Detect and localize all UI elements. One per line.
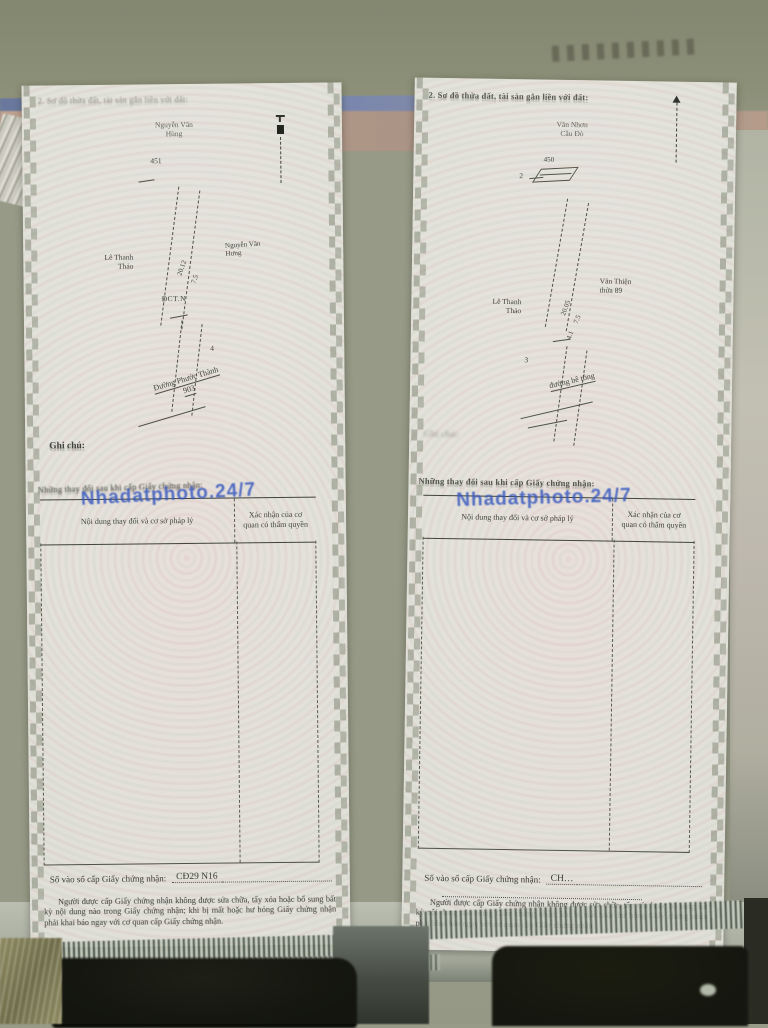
- land-certificate-left: 2. Sơ đồ thửa đất, tài sản gắn liền với …: [21, 82, 350, 947]
- border-pattern-right: [327, 82, 348, 944]
- bottom-left-texture: [0, 938, 62, 1024]
- dimension-label: 2: [519, 171, 523, 180]
- parcel-boundary-line: [160, 187, 179, 326]
- changes-table-body: [418, 537, 695, 853]
- note-label: Ghi chú:: [423, 430, 459, 441]
- light-spot: [700, 984, 716, 996]
- dimension-tick: [139, 179, 155, 182]
- dimension-tick: [170, 314, 188, 318]
- serial-value: CĐ29 N16: [172, 872, 222, 884]
- dimension-label: 3: [524, 355, 528, 364]
- measurement: 20.12: [175, 259, 188, 277]
- parcel-boundary-line: [566, 203, 589, 331]
- parcel-number: 450: [544, 156, 555, 164]
- dimension-label: 4: [210, 344, 214, 353]
- parcel-boundary-line: [573, 351, 587, 446]
- changes-table-col2: Xác nhận của cơ quan có thẩm quyền: [235, 498, 316, 543]
- parcel-top-shape: [532, 167, 579, 183]
- measurement: 7.5: [572, 314, 583, 325]
- serial-label: Số vào sổ cấp Giấy chứng nhận:: [50, 873, 166, 884]
- table-column-separator: [609, 540, 615, 851]
- parcel-boundary-line: [553, 346, 567, 441]
- table-column-separator: [236, 541, 240, 862]
- adjacent-owner-left: Thảo: [61, 262, 133, 272]
- parcel-number: 451: [150, 156, 161, 165]
- adjacent-owner-right: thửa 89: [599, 285, 689, 295]
- dotted-leader: [222, 871, 332, 882]
- adjacent-owner-top: Cầu Đò: [512, 128, 632, 139]
- serial-row: Số vào sổ cấp Giấy chứng nhận: CH…: [424, 872, 702, 887]
- serial-label: Số vào sổ cấp Giấy chứng nhận:: [424, 873, 541, 885]
- note-label: Ghi chú:: [49, 441, 85, 451]
- dark-object-left: [52, 958, 357, 1028]
- adjacent-owner-left: Thảo: [453, 305, 521, 315]
- measurement: 7.5: [190, 274, 200, 285]
- adjacent-owner-top: Hùng: [114, 128, 234, 138]
- changes-table-body: [40, 541, 319, 866]
- serial-row: Số vào sổ cấp Giấy chứng nhận: CĐ29 N16: [50, 870, 332, 884]
- north-arrow-icon: [274, 115, 287, 183]
- legal-note: Người được cấp Giấy chứng nhận không đượ…: [44, 894, 336, 928]
- diagram-heading: 2. Sơ đồ thửa đất, tài sản gắn liền với …: [429, 90, 689, 104]
- dotted-leader: [577, 875, 702, 887]
- dimension-tick: [553, 339, 571, 343]
- serial-value: CH…: [547, 874, 578, 885]
- road-line: [528, 420, 567, 429]
- land-use-code: ĐCT.N: [162, 294, 186, 303]
- diagram-heading: 2. Sơ đồ thửa đất, tài sản gắn liền với …: [38, 93, 278, 106]
- background-right-edge: [730, 130, 768, 900]
- road-label: đường bê tông: [548, 371, 596, 392]
- land-certificate-right: 2. Sơ đồ thửa đất, tài sản gắn liền với …: [401, 78, 737, 955]
- north-arrow-icon: [670, 96, 683, 163]
